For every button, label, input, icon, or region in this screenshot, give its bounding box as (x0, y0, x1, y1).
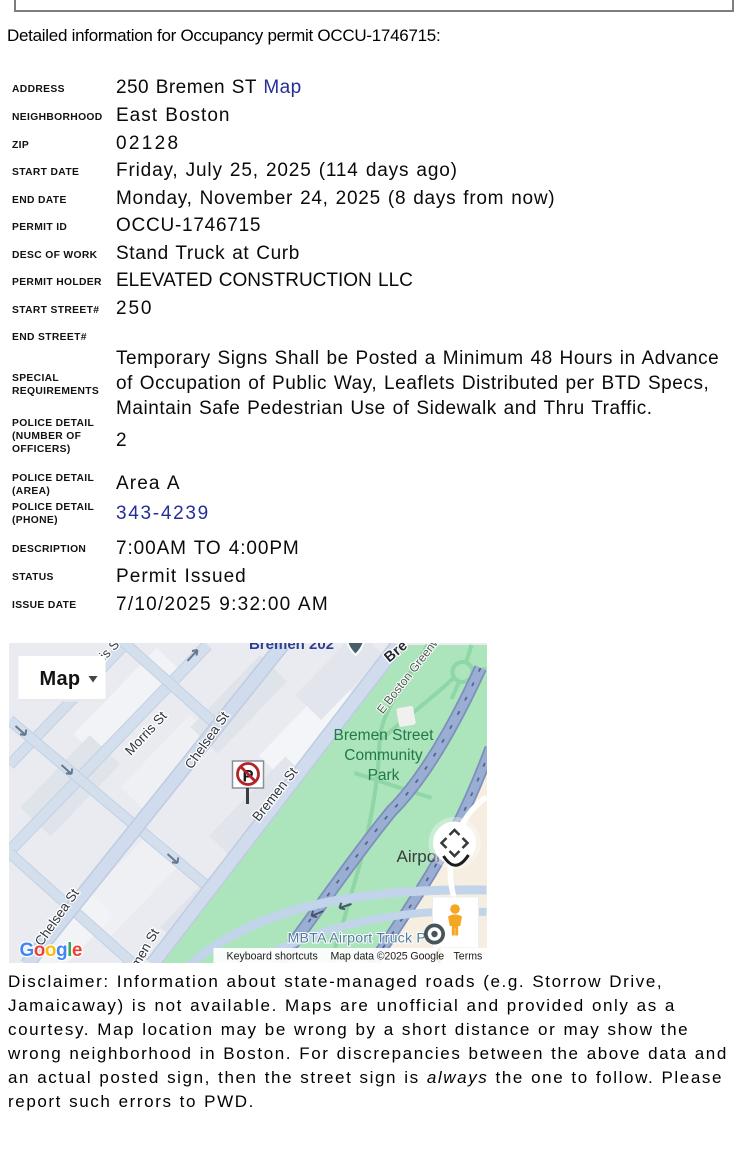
svg-text:Terms: Terms (454, 951, 483, 963)
svg-text:Google: Google (20, 940, 82, 961)
svg-text:Bremen Street: Bremen Street (334, 727, 435, 744)
svg-text:Map data ©2025 Google: Map data ©2025 Google (331, 951, 445, 963)
svg-text:Bremen 202: Bremen 202 (249, 643, 334, 653)
svg-text:Community: Community (344, 747, 423, 764)
svg-text:Park: Park (368, 767, 400, 784)
svg-text:MBTA Airport Truck Pad: MBTA Airport Truck Pad (288, 931, 443, 947)
svg-text:Map: Map (40, 668, 81, 690)
svg-text:Keyboard shortcuts: Keyboard shortcuts (227, 951, 318, 963)
